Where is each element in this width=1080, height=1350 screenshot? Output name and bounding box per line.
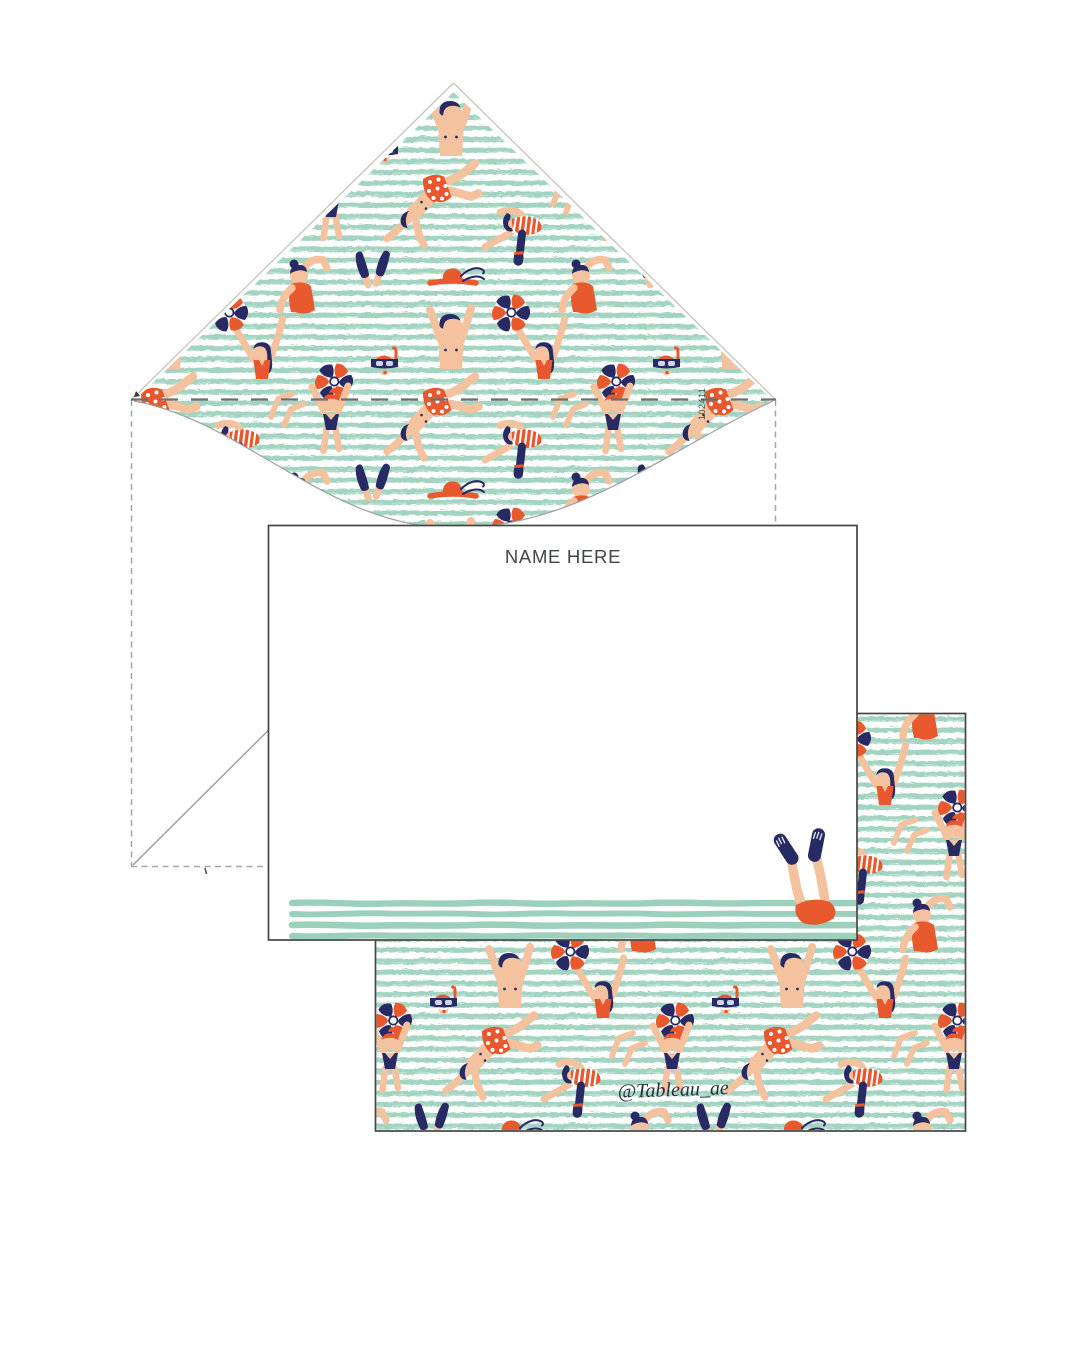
svg-text:102411: 102411: [697, 388, 707, 420]
svg-text:@Tableau_ae: @Tableau_ae: [617, 1077, 729, 1103]
svg-text:NAME HERE: NAME HERE: [505, 546, 621, 567]
